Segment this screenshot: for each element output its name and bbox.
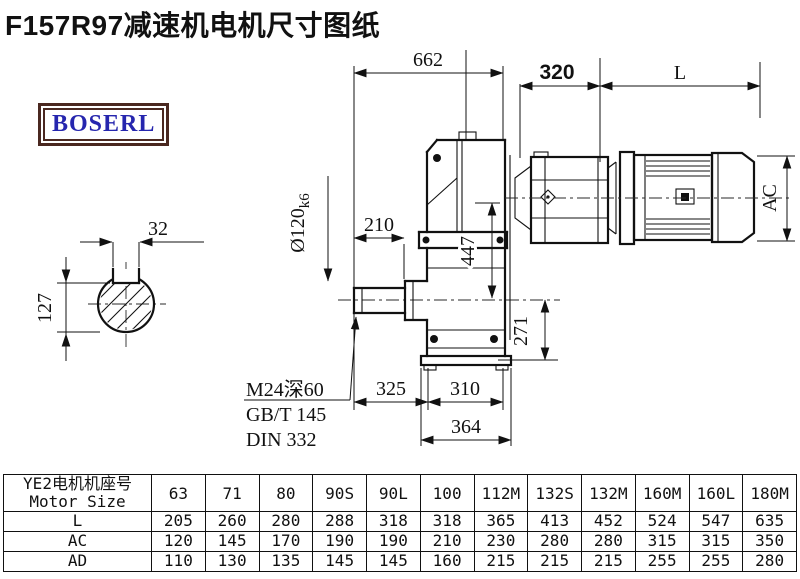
table-cell: 230 <box>474 532 528 552</box>
ac-dimension: AC <box>757 156 795 241</box>
table-cell: 110 <box>152 552 206 572</box>
table-cell: 524 <box>635 512 689 532</box>
table-cell: 350 <box>743 532 797 552</box>
size-col-header: 100 <box>420 475 474 512</box>
table-header-row: YE2电机机座号 Motor Size 63718090S90L100112M1… <box>4 475 797 512</box>
row-label: L <box>4 512 152 532</box>
motor-size-table: YE2电机机座号 Motor Size 63718090S90L100112M1… <box>3 474 797 572</box>
table-cell: 315 <box>635 532 689 552</box>
table-cell: 280 <box>528 532 582 552</box>
table-cell: 635 <box>743 512 797 532</box>
table-row: L205260280288318318365413452524547635 <box>4 512 797 532</box>
table-cell: 260 <box>205 512 259 532</box>
size-col-header: 80 <box>259 475 313 512</box>
hatching <box>60 238 192 370</box>
svg-text:Ø120k6: Ø120k6 <box>287 193 313 253</box>
size-col-header: 63 <box>152 475 206 512</box>
dim-base-length: 364 <box>451 416 481 438</box>
row-label: AC <box>4 532 152 552</box>
table-cell: 280 <box>743 552 797 572</box>
dim-shaft-dia: Ø120 <box>287 208 309 252</box>
size-col-header: 132S <box>528 475 582 512</box>
table-cell: 135 <box>259 552 313 572</box>
size-col-header: 112M <box>474 475 528 512</box>
dim-shaft-tol: k6 <box>297 193 313 209</box>
table-cell: 120 <box>152 532 206 552</box>
size-col-header: 180M <box>743 475 797 512</box>
table-cell: 160 <box>420 552 474 572</box>
bottom-dimensions: 325 310 364 <box>354 368 511 446</box>
size-col-header: 160M <box>635 475 689 512</box>
table-cell: 145 <box>313 552 367 572</box>
table-row: AC120145170190190210230280280315315350 <box>4 532 797 552</box>
size-col-header: 132M <box>582 475 636 512</box>
table-cell: 145 <box>367 552 421 572</box>
table-cell: 318 <box>420 512 474 532</box>
page: F157R97减速机电机尺寸图纸 BOSERL <box>0 0 800 579</box>
dim-hub-length: 210 <box>364 214 394 236</box>
table-cell: 190 <box>313 532 367 552</box>
tap-note-din: DIN 332 <box>246 429 317 451</box>
table-cell: 215 <box>474 552 528 572</box>
dim-overall-length: 662 <box>413 49 443 71</box>
table-cell: 145 <box>205 532 259 552</box>
table-cell: 452 <box>582 512 636 532</box>
middle-dimensions: 210 447 271 <box>354 203 558 360</box>
table-cell: 318 <box>367 512 421 532</box>
size-table-body: YE2电机机座号 Motor Size 63718090S90L100112M1… <box>4 475 797 572</box>
motor-size-header: YE2电机机座号 Motor Size <box>4 475 152 512</box>
table-cell: 365 <box>474 512 528 532</box>
table-cell: 280 <box>259 512 313 532</box>
size-col-header: 90L <box>367 475 421 512</box>
motor-size-header-cn: YE2电机机座号 <box>4 475 151 493</box>
table-cell: 205 <box>152 512 206 532</box>
dim-foot-left: 325 <box>376 378 406 400</box>
dim-adapter-length: 320 <box>539 61 574 84</box>
tap-note-size: M24深60 <box>246 378 324 401</box>
motor-size-header-en: Motor Size <box>4 493 151 511</box>
dim-motor-diameter: AC <box>759 184 781 212</box>
technical-drawing: 32 127 662 320 L Ø120k6 <box>0 45 800 460</box>
dim-foot-right: 310 <box>450 378 480 400</box>
table-cell: 413 <box>528 512 582 532</box>
table-cell: 210 <box>420 532 474 552</box>
shaft-section-view: 32 127 <box>34 218 204 370</box>
table-cell: 255 <box>635 552 689 572</box>
table-cell: 315 <box>689 532 743 552</box>
dim-motor-length: L <box>674 62 686 84</box>
dim-housing-height: 447 <box>457 236 479 266</box>
dim-key-width: 32 <box>148 218 168 240</box>
size-col-header: 71 <box>205 475 259 512</box>
row-label: AD <box>4 552 152 572</box>
table-cell: 215 <box>528 552 582 572</box>
table-cell: 280 <box>582 532 636 552</box>
size-col-header: 160L <box>689 475 743 512</box>
table-row: AD110130135145145160215215215255255280 <box>4 552 797 572</box>
page-title: F157R97减速机电机尺寸图纸 <box>5 4 380 44</box>
table-cell: 255 <box>689 552 743 572</box>
size-col-header: 90S <box>313 475 367 512</box>
shaft-diameter-callout: Ø120k6 <box>287 176 328 281</box>
tap-hole-notes: M24深60 GB/T 145 DIN 332 <box>244 317 356 451</box>
dim-key-height: 127 <box>34 293 56 323</box>
table-cell: 190 <box>367 532 421 552</box>
table-cell: 288 <box>313 512 367 532</box>
dim-axis-height: 271 <box>510 316 532 346</box>
tap-note-gb: GB/T 145 <box>246 404 326 426</box>
table-cell: 547 <box>689 512 743 532</box>
table-cell: 215 <box>582 552 636 572</box>
table-cell: 170 <box>259 532 313 552</box>
table-cell: 130 <box>205 552 259 572</box>
